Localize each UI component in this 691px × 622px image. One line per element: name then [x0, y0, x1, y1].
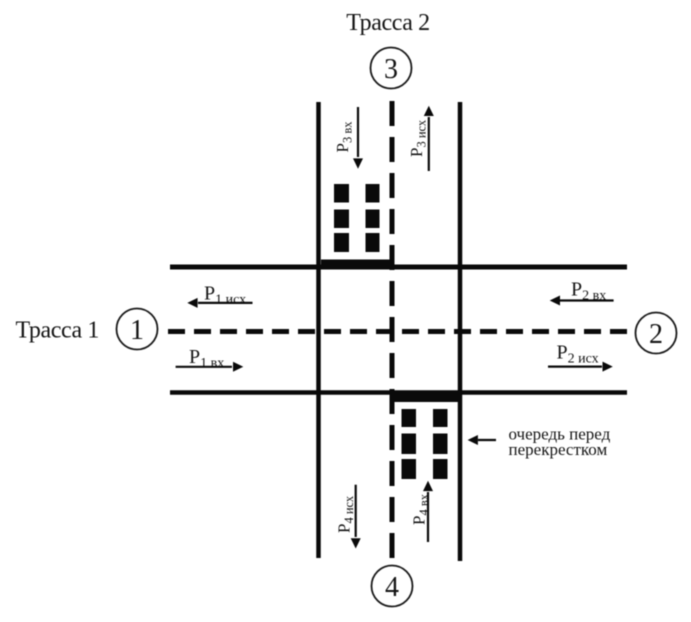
svg-text:3: 3: [384, 54, 398, 85]
svg-text:перекрестком: перекрестком: [509, 440, 608, 459]
svg-text:1: 1: [130, 315, 144, 346]
svg-text:2: 2: [649, 319, 663, 350]
svg-text:4: 4: [385, 572, 399, 603]
svg-text:Трасса 2: Трасса 2: [346, 10, 429, 36]
svg-text:Трасса 1: Трасса 1: [16, 318, 99, 344]
